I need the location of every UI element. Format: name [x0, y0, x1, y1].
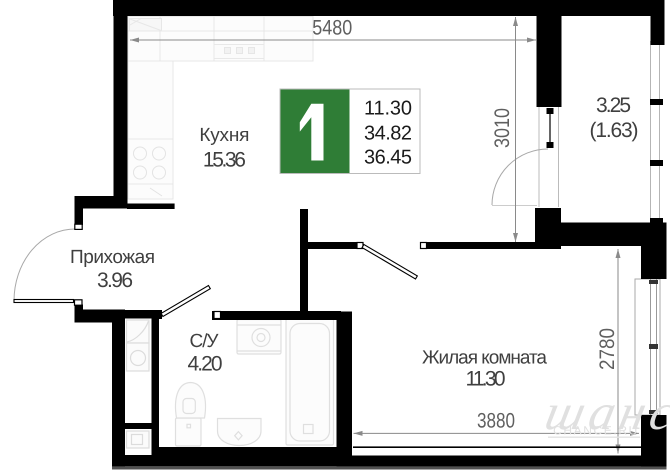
- svg-text:4.20: 4.20: [188, 353, 223, 376]
- svg-text:36.45: 36.45: [364, 147, 412, 169]
- svg-text:11.30: 11.30: [466, 368, 506, 391]
- svg-text:Прихожая: Прихожая: [70, 247, 155, 268]
- svg-text:3010: 3010: [491, 108, 514, 148]
- svg-text:(1.63): (1.63): [590, 119, 639, 142]
- svg-text:11.30: 11.30: [364, 98, 412, 120]
- svg-text:2780: 2780: [596, 328, 619, 370]
- svg-text:Жилая комната: Жилая комната: [422, 348, 547, 369]
- svg-text:3.96: 3.96: [97, 269, 133, 292]
- svg-text:3880: 3880: [477, 410, 515, 433]
- svg-text:Кухня: Кухня: [199, 125, 249, 146]
- svg-text:15.36: 15.36: [203, 149, 246, 172]
- svg-text:5480: 5480: [312, 17, 352, 40]
- svg-text:3.25: 3.25: [596, 94, 631, 117]
- svg-text:CHANCE.RU: CHANCE.RU: [553, 424, 639, 438]
- svg-text:34.82: 34.82: [364, 123, 412, 145]
- svg-text:С/У: С/У: [190, 331, 220, 352]
